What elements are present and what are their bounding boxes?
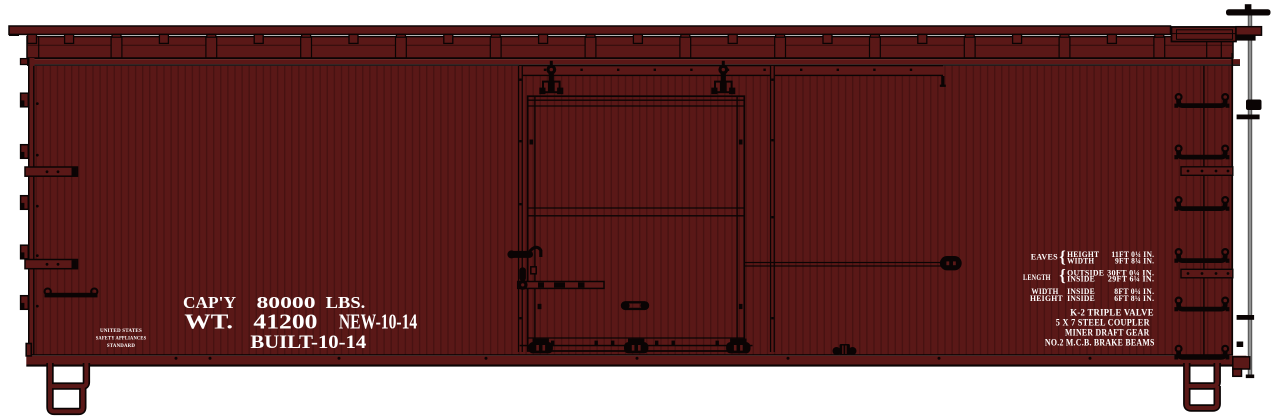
svg-text:29FT 6¼ IN.: 29FT 6¼ IN. [1108, 274, 1154, 283]
svg-text:WT.: WT. [184, 310, 233, 334]
svg-text:{: { [1059, 266, 1066, 285]
svg-text:EAVES: EAVES [1031, 253, 1058, 262]
svg-text:BUILT-10-14: BUILT-10-14 [250, 333, 366, 353]
svg-text:INSIDE: INSIDE [1067, 274, 1095, 283]
svg-text:{: { [1059, 247, 1066, 266]
svg-text:41200: 41200 [253, 310, 317, 334]
svg-text:INSIDE: INSIDE [1067, 294, 1095, 303]
svg-text:UNITED STATES: UNITED STATES [100, 328, 142, 334]
svg-text:WIDTH: WIDTH [1067, 257, 1094, 266]
svg-text:STANDARD: STANDARD [107, 343, 135, 349]
svg-text:9FT 8¼ IN.: 9FT 8¼ IN. [1115, 257, 1154, 266]
svg-text:K-2 TRIPLE VALVE: K-2 TRIPLE VALVE [1070, 307, 1154, 317]
svg-text:NO.2 M.C.B. BRAKE BEAMS: NO.2 M.C.B. BRAKE BEAMS [1045, 337, 1155, 347]
svg-text:SAFETY APPLIANCES: SAFETY APPLIANCES [96, 335, 147, 341]
svg-text:NEW-10-14: NEW-10-14 [339, 310, 417, 334]
svg-text:LENGTH: LENGTH [1023, 273, 1051, 282]
svg-text:5 X 7 STEEL COUPLER: 5 X 7 STEEL COUPLER [1056, 317, 1150, 327]
svg-text:6FT 8¼ IN.: 6FT 8¼ IN. [1114, 294, 1154, 303]
svg-text:MINER DRAFT GEAR: MINER DRAFT GEAR [1065, 327, 1150, 337]
svg-text:HEIGHT: HEIGHT [1030, 294, 1063, 303]
